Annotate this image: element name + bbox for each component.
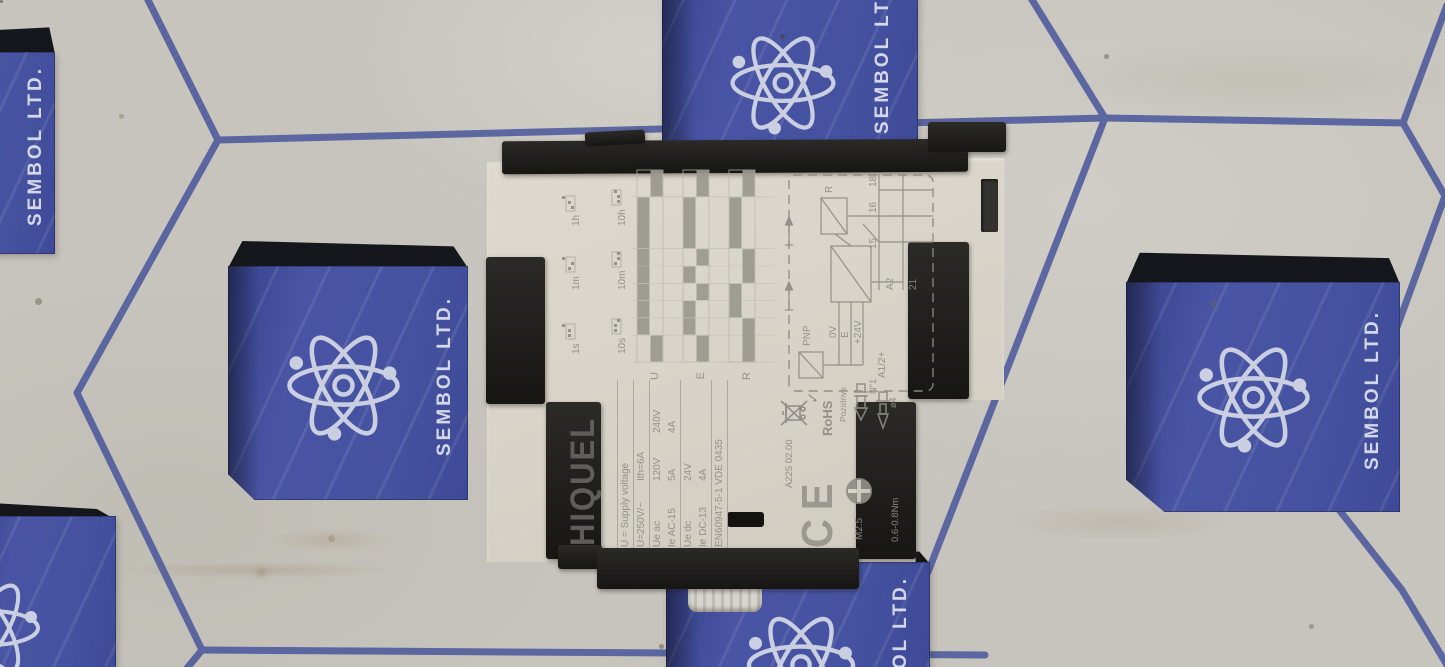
- phillips-screw-icon: [842, 474, 876, 508]
- atom-icon: [0, 568, 50, 667]
- spec-row: Ie AC-15 5A 4A: [665, 380, 681, 548]
- timing-segment: [684, 267, 696, 283]
- timing-segment: [730, 197, 742, 248]
- timing-segment: [730, 284, 742, 318]
- timing-segment: [743, 249, 755, 283]
- spec-table: U = Supply voltage U=250V/~ Ith=6A Ue ac…: [617, 380, 728, 548]
- brand-cube-left: SEMBOL LTD.: [0, 52, 55, 254]
- timing-segment: [684, 197, 696, 248]
- timing-row-label: R: [741, 372, 753, 380]
- standard-code: EN60947-5-1 VDE 0435: [714, 385, 726, 547]
- spec-row: Ue dc 24V: [681, 380, 696, 548]
- circuit-label-a2: A2: [885, 277, 896, 290]
- dip-legend-label: 1s: [571, 343, 582, 354]
- circuit-label-15: 15: [868, 237, 879, 249]
- spec-cell: U=250V/~: [636, 481, 648, 547]
- timing-diagram: UER: [627, 164, 799, 402]
- brand-cube-midleft: SEMBOL LTD.: [228, 266, 468, 500]
- rohs-mark: RoHS: [820, 401, 835, 436]
- spec-cell: Ue dc: [683, 481, 695, 547]
- circuit-label-24v: +24V: [853, 320, 864, 344]
- timing-segment: [697, 284, 709, 300]
- dip-legend-item: 1m: [561, 226, 607, 290]
- dip-switch-icon: [561, 318, 577, 340]
- dip-legend-item: 1h: [561, 164, 607, 226]
- atom-icon: [720, 20, 846, 146]
- relay-housing-bottom-bar: [597, 548, 859, 589]
- spec-cell: Ie AC-15: [667, 481, 679, 547]
- cube-watermark-label: SEMBOL LTD.: [1362, 310, 1384, 470]
- spec-row: Ie DC-13 4A: [696, 380, 712, 548]
- brand-logo: HIQUEL: [563, 417, 603, 546]
- dust-specks: [0, 0, 3, 3]
- atom-icon: [1186, 330, 1321, 465]
- spec-cell: Ue ac: [652, 481, 664, 547]
- cube-watermark-label: SEMBOL LTD.: [25, 66, 47, 226]
- brand-cube-bottomleft: [0, 516, 116, 667]
- timing-row-label: E: [695, 372, 707, 379]
- spec-cell: 4A: [698, 433, 710, 481]
- certification-marks: A225 02.00 CE ✓ RoHS M2.5: [776, 380, 939, 550]
- timing-segment: [697, 336, 709, 362]
- dip-switch-icon: [607, 313, 623, 335]
- circuit-label-16: 16: [868, 201, 879, 213]
- spec-cell: 120V: [652, 433, 664, 481]
- dip-switch-icon: [607, 246, 623, 268]
- cube-watermark-label: SEMBOL LTD.: [872, 0, 894, 134]
- dip-legend-label: 1h: [571, 215, 582, 226]
- dip-legend-label: 1m: [571, 276, 582, 290]
- brand-cube-left-top-face: [0, 26, 55, 54]
- dip-legend-item: 1s: [561, 290, 607, 354]
- timing-row-label: U: [649, 372, 661, 380]
- torque-spec: 0.6-0.8Nm: [890, 498, 901, 542]
- cube-watermark-label: SEMBOL LTD.: [890, 576, 912, 667]
- ce-mark: CE: [794, 474, 843, 548]
- circuit-diagram: PNP 0V E +24V A1/2+ R 15 16 18 A2 21: [783, 166, 939, 394]
- circuit-label-pnp: PNP: [802, 325, 813, 346]
- spec-row: U = Supply voltage: [618, 380, 634, 548]
- product-label: HIQUEL U = Supply voltage U=250V/~ Ith=6…: [521, 164, 939, 550]
- spec-cell: 5A: [667, 433, 679, 481]
- supply-note: U = Supply voltage: [620, 385, 632, 547]
- circuit-label-0v: 0V: [828, 325, 839, 338]
- atom-icon: [276, 318, 411, 453]
- timing-segment: [651, 336, 663, 362]
- spec-row: U=250V/~ Ith=6A: [634, 380, 650, 548]
- dip-switch-icon: [607, 184, 623, 206]
- circuit-label-e: E: [840, 331, 851, 338]
- circuit-label-18: 18: [868, 175, 879, 187]
- brand-cube-right: SEMBOL LTD.: [1126, 282, 1400, 512]
- photo-scene: SEMBOL LTD. SEMBOL LTD. SEMBOL LTD.: [0, 0, 1445, 667]
- driver-diameter: ø4: [888, 397, 898, 408]
- circuit-label-coil: R: [824, 186, 835, 193]
- spec-cell: Ie DC-13: [698, 481, 710, 547]
- timing-segment: [743, 171, 755, 197]
- timing-segment: [697, 249, 709, 265]
- circuit-label-21: 21: [908, 278, 919, 290]
- cube-watermark-label: SEMBOL LTD.: [434, 296, 456, 456]
- timing-segment: [651, 171, 663, 197]
- circuit-label-a12: A1/2+: [877, 351, 888, 378]
- dip-switch-icon: [561, 251, 577, 273]
- housing-vent-slot: [981, 179, 998, 232]
- relay-housing-top-right: [928, 122, 1006, 152]
- spec-cell: 24V: [683, 433, 695, 481]
- screw-size: M2.5: [854, 518, 865, 540]
- spec-row: EN60947-5-1 VDE 0435: [712, 380, 728, 548]
- timing-segment: [697, 171, 709, 197]
- timing-segment: [743, 318, 755, 361]
- delay-arrow-icon: [785, 217, 793, 310]
- spec-row: Ue ac 120V 240V: [650, 380, 665, 548]
- dip-switch-icon: [561, 190, 577, 212]
